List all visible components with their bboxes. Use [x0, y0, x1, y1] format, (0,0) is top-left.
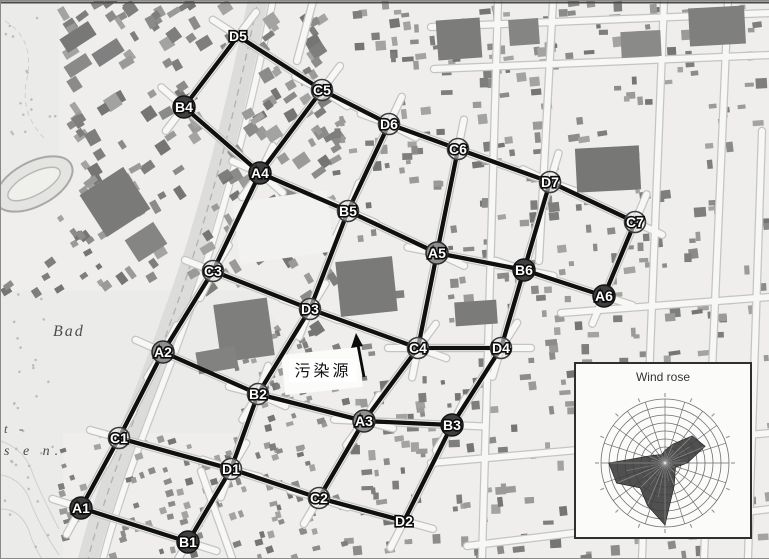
node-A2: A2 [152, 341, 174, 363]
node-label: D6 [380, 116, 398, 132]
node-D7: D7 [540, 172, 561, 193]
figure-map: A1A2A3A4A5A6B1B2B3B4B5B6C1C2C3C4C5C6C7D1… [0, 0, 769, 559]
node-label: B1 [179, 534, 197, 550]
node-B6: B6 [513, 259, 535, 281]
node-C5: C5 [312, 80, 333, 101]
node-label: A4 [251, 165, 269, 181]
node-label: C1 [110, 430, 128, 446]
node-D2: D2 [395, 513, 413, 529]
node-B2: B2 [248, 384, 269, 405]
node-A1: A1 [70, 497, 92, 519]
node-B3: B3 [441, 414, 463, 436]
node-A5: A5 [426, 242, 448, 264]
node-label: B6 [515, 262, 533, 278]
node-label: D2 [395, 513, 413, 529]
node-label: C7 [626, 214, 644, 230]
node-label: B4 [175, 99, 193, 115]
node-label: C2 [310, 490, 328, 506]
node-label: A5 [428, 245, 446, 261]
node-label: B5 [339, 203, 357, 219]
wind-rose-inset: Wind rose [574, 362, 752, 539]
node-D1: D1 [221, 459, 242, 480]
wind-rose-chart [576, 364, 750, 537]
node-label: C4 [409, 340, 427, 356]
node-label: A6 [595, 288, 613, 304]
node-label: B2 [249, 386, 267, 402]
node-label: C5 [313, 82, 331, 98]
node-D3: D3 [300, 299, 321, 320]
node-C2: C2 [309, 488, 330, 509]
pollution-source-label: 污染源 [289, 359, 357, 382]
wind-rose-title: Wind rose [576, 370, 750, 384]
node-label: D7 [541, 174, 559, 190]
node-B1: B1 [177, 531, 199, 553]
node-label: D5 [229, 28, 247, 44]
node-label: D4 [492, 340, 510, 356]
node-D6: D6 [379, 114, 400, 135]
node-label: A1 [72, 500, 90, 516]
node-label: D3 [301, 301, 319, 317]
node-D5: D5 [229, 28, 247, 44]
node-label: C3 [204, 263, 222, 279]
node-B5: B5 [338, 201, 359, 222]
node-label: A2 [154, 344, 172, 360]
node-C1: C1 [109, 428, 130, 449]
node-B4: B4 [173, 96, 195, 118]
node-A3: A3 [353, 410, 375, 432]
node-C7: C7 [625, 212, 646, 233]
node-C3: C3 [203, 261, 224, 282]
node-D4: D4 [491, 338, 512, 359]
node-label: B3 [443, 417, 461, 433]
node-C6: C6 [448, 139, 469, 160]
node-C4: C4 [408, 338, 429, 359]
node-A4: A4 [249, 162, 271, 184]
node-label: D1 [222, 461, 240, 477]
node-label: A3 [355, 413, 373, 429]
node-A6: A6 [593, 285, 615, 307]
node-label: C6 [449, 141, 467, 157]
